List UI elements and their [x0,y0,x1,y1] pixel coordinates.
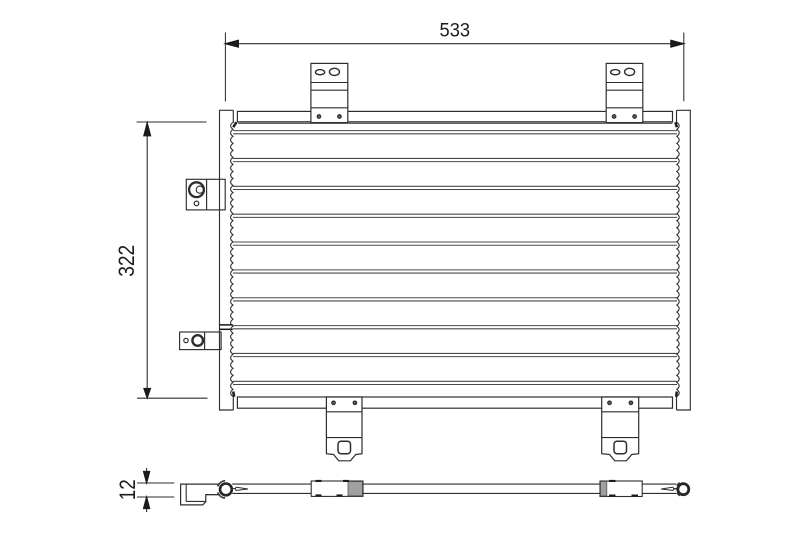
svg-text:533: 533 [440,20,471,42]
svg-text:322: 322 [114,245,139,277]
svg-text:12: 12 [115,479,140,500]
